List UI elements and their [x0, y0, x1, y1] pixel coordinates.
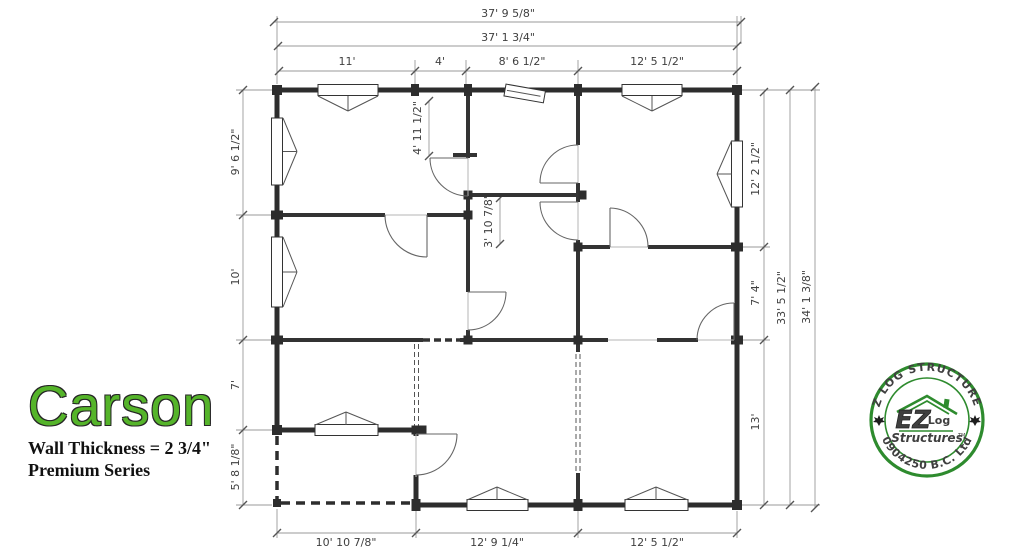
dim-top-inner: 37' 1 3/4" — [481, 31, 535, 44]
dim-interior-v1: 4' 11 1/2" — [411, 101, 424, 155]
dim-bottom-seg2: 12' 9 1/4" — [470, 536, 524, 549]
door-hallway — [468, 292, 506, 330]
window-top-left — [318, 85, 378, 112]
dim-bottom-seg1: 10' 10 7/8" — [316, 536, 377, 549]
stamp-structures-text: Structures — [891, 431, 962, 445]
title-block: Carson Wall Thickness = 2 3/4" Premium S… — [28, 378, 215, 482]
dim-interior-v2: 3' 10 7/8" — [482, 194, 495, 248]
window-left-lower — [272, 237, 298, 307]
door-bath-upper — [430, 158, 468, 196]
window-top-middle — [504, 84, 545, 103]
window-bottom-middle — [467, 487, 528, 511]
wall-junction-nubs — [271, 84, 743, 511]
dim-left-seg3: 7' — [229, 380, 242, 390]
porch-corner-post — [273, 499, 281, 507]
dim-right-seg1: 12' 2 1/2" — [749, 142, 762, 196]
windows — [272, 84, 743, 510]
door-midroom-upper — [540, 145, 578, 183]
door-right-room-lower — [697, 303, 734, 340]
door-closet — [540, 202, 578, 240]
door-right-room-upper — [610, 208, 648, 247]
dim-right-inner: 33' 5 1/2" — [775, 271, 788, 325]
dim-left-seg1: 9' 6 1/2" — [229, 129, 242, 176]
dim-left-seg4: 5' 8 1/8" — [229, 444, 242, 491]
dim-right-seg2: 7' 4" — [749, 280, 762, 306]
interior-walls — [277, 90, 737, 505]
door-entry — [416, 434, 457, 475]
plan-title: Carson — [28, 378, 215, 434]
stamp-ez-text: EZ — [895, 405, 931, 434]
stamp-tm-text: TM — [957, 433, 965, 439]
floor-plan-sheet: 37' 9 5/8" 37' 1 3/4" 11' 4' 8' 6 1/2" 1… — [0, 0, 1024, 553]
dim-left-seg2: 10' — [229, 268, 242, 285]
wall-thickness-note: Wall Thickness = 2 3/4" — [28, 438, 215, 460]
dim-bottom-seg3: 12' 5 1/2" — [630, 536, 684, 549]
exterior-walls — [275, 88, 739, 507]
window-porch-wall — [315, 412, 378, 436]
loft-outline-dashed — [415, 344, 581, 471]
dim-right-outer: 34' 1 3/8" — [800, 270, 813, 324]
window-bottom-right — [625, 487, 688, 511]
window-right — [717, 141, 743, 207]
dim-top-seg3: 8' 6 1/2" — [499, 55, 546, 68]
dim-top-outer: 37' 9 5/8" — [481, 7, 535, 20]
dim-top-seg1: 11' — [338, 55, 355, 68]
stamp-log-text: Log — [928, 414, 950, 427]
door-bedroom1 — [385, 215, 427, 257]
porch-outline-dashed — [277, 436, 412, 503]
window-left-upper — [272, 118, 298, 185]
window-top-right — [622, 85, 682, 112]
dim-top-seg4: 12' 5 1/2" — [630, 55, 684, 68]
dim-top-seg2: 4' — [435, 55, 445, 68]
dim-right-seg3: 13' — [749, 413, 762, 430]
series-note: Premium Series — [28, 460, 215, 482]
